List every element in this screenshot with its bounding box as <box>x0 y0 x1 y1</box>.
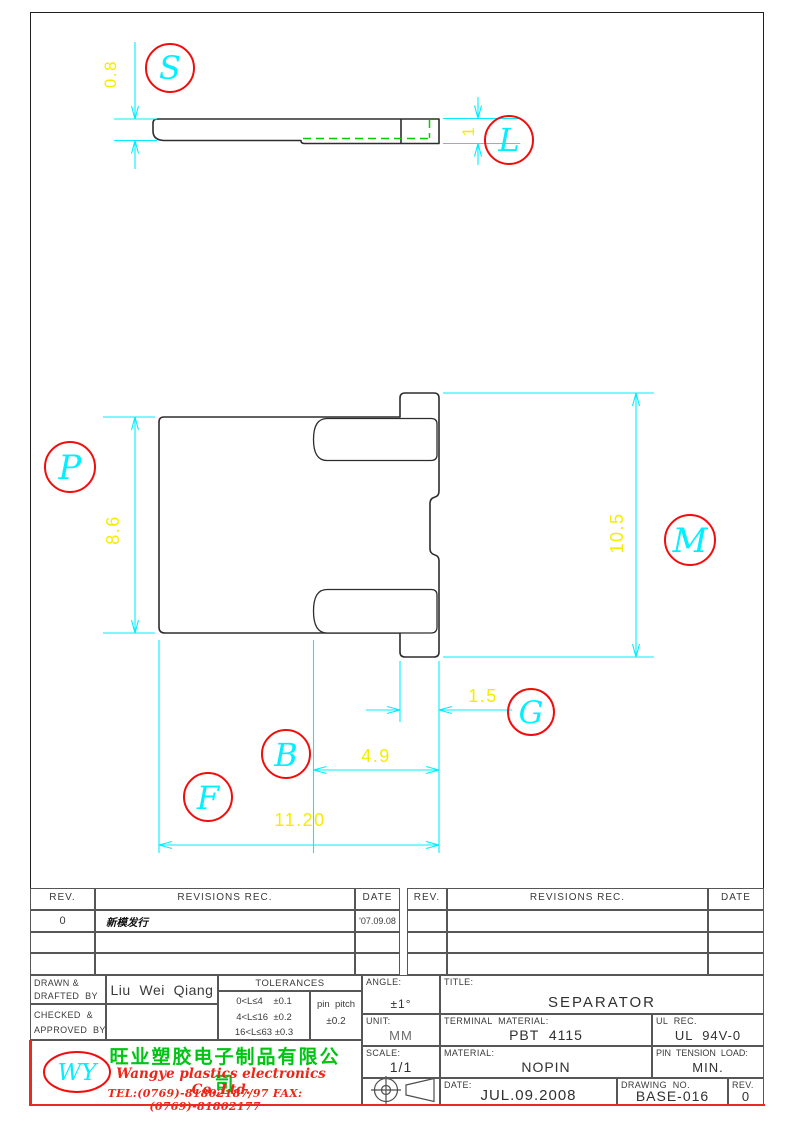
material-cell: MATERIAL: NOPIN <box>440 1046 652 1078</box>
rev-header-left: REV. <box>31 892 94 903</box>
rev-empty-cell <box>708 932 764 953</box>
ul-rec-value: UL 94V-0 <box>653 1028 763 1043</box>
rev-empty-cell <box>95 953 355 975</box>
rev-empty-cell <box>407 932 447 953</box>
rev-empty-cell <box>355 932 400 953</box>
drawing-sheet: 0.8 1 S L 8.6 <box>0 0 793 1122</box>
date-value: JUL.09.2008 <box>441 1087 616 1104</box>
rev-empty-cell <box>447 932 708 953</box>
pin-tension-cell: PIN TENSION LOAD: MIN. <box>652 1046 764 1078</box>
rev-entry-rev: 0 <box>31 915 94 927</box>
ul-rec-cell: UL REC. UL 94V-0 <box>652 1014 764 1046</box>
company-tel-fax: TEL:(0769)-81802187/97 FAX:(0769)-818021… <box>52 1087 358 1113</box>
balloon-m-letter: M <box>672 521 709 561</box>
balloon-b: B <box>262 730 310 778</box>
checked-by-label: CHECKED & APPROVED BY <box>34 1008 106 1038</box>
revisions-header-left: REVISIONS REC. <box>96 892 354 903</box>
revisions-header-cell-left: REVISIONS REC. <box>95 888 355 910</box>
date-header-right: DATE <box>709 892 763 903</box>
rev-entry-rev-cell: 0 <box>30 910 95 932</box>
dim-slot-depth: 4.9 <box>314 746 440 774</box>
lower-slot <box>314 590 438 634</box>
drawn-by-label: DRAWN & DRAFTED BY <box>34 977 98 1003</box>
drawn-by-value-cell: Liu Wei Qiang <box>106 975 218 1004</box>
rev-entry-desc-cell: 新模发行 <box>95 910 355 932</box>
balloon-g: G <box>508 689 554 735</box>
material-label: MATERIAL: <box>444 1048 494 1058</box>
title-value: SEPARATOR <box>441 994 763 1011</box>
balloon-f-letter: F <box>196 779 221 817</box>
material-value: NOPIN <box>441 1059 651 1075</box>
date-header-cell-right: DATE <box>708 888 764 910</box>
rev-empty-cell <box>30 932 95 953</box>
revisions-header-right: REVISIONS REC. <box>448 892 707 903</box>
drawing-no-cell: DRAWING NO. BASE-016 <box>617 1078 728 1106</box>
balloon-s: S <box>146 44 194 92</box>
rev-entry-description: 新模发行 <box>106 915 148 930</box>
dim-slot-depth-text: 4.9 <box>361 746 391 766</box>
rev-header-cell-left: REV. <box>30 888 95 910</box>
scale-label: SCALE: <box>366 1048 400 1058</box>
dim-body-height: 8.6 <box>103 417 155 633</box>
pin-pitch-value: ±0.2 <box>311 1016 361 1027</box>
checked-by-label-cell: CHECKED & APPROVED BY <box>30 1004 106 1040</box>
tolerances-rows: 0<L≤4 ±0.1 4<L≤16 ±0.2 16<L≤63 ±0.3 <box>219 994 309 1041</box>
upper-slot <box>314 419 438 461</box>
drawing-no-value: BASE-016 <box>618 1088 727 1104</box>
balloon-b-letter: B <box>273 736 298 774</box>
angle-cell: ANGLE: ±1° <box>362 975 440 1014</box>
terminal-material-value: PBT 4115 <box>441 1027 651 1043</box>
title-label: TITLE: <box>444 977 473 987</box>
pin-tension-label: PIN TENSION LOAD: <box>656 1048 748 1058</box>
balloon-m: M <box>665 515 715 565</box>
date-header-left: DATE <box>356 892 399 903</box>
balloon-p-letter: P <box>58 448 83 488</box>
rev-entry-date: '07.09.08 <box>356 916 399 926</box>
rev-empty-cell <box>95 932 355 953</box>
rev-empty-cell <box>30 953 95 975</box>
date-cell: DATE: JUL.09.2008 <box>440 1078 617 1106</box>
balloon-f: F <box>184 773 232 821</box>
rev-empty-cell <box>407 953 447 975</box>
unit-label: UNIT: <box>366 1016 391 1026</box>
top-view-outline <box>153 119 439 144</box>
balloon-s-letter: S <box>159 49 181 87</box>
rev-empty-cell <box>708 910 764 932</box>
balloon-l: L <box>485 116 533 164</box>
rev-empty-cell <box>447 953 708 975</box>
dim-thickness-text: 0.8 <box>101 60 120 88</box>
balloon-p: P <box>45 442 95 492</box>
front-view <box>159 393 439 657</box>
unit-cell: UNIT: MM <box>362 1014 440 1046</box>
scale-value: 1/1 <box>363 1059 439 1075</box>
top-view <box>153 119 439 144</box>
dim-end-thickness-text: 1 <box>459 126 478 137</box>
revisions-header-cell-right: REVISIONS REC. <box>447 888 708 910</box>
ul-rec-label: UL REC. <box>656 1016 697 1026</box>
pin-pitch-label: pin pitch <box>311 999 361 1010</box>
rev-empty-cell <box>708 953 764 975</box>
dim-overall-height: 10.5 <box>443 393 654 657</box>
rev-empty-cell <box>447 910 708 932</box>
rev-header-right: REV. <box>408 892 446 903</box>
terminal-material-label: TERMINAL MATERIAL: <box>444 1016 549 1026</box>
tolerances-rows-cell: 0<L≤4 ±0.1 4<L≤16 ±0.2 16<L≤63 ±0.3 <box>218 991 310 1040</box>
title-cell: TITLE: SEPARATOR <box>440 975 764 1014</box>
rev-empty-cell <box>355 953 400 975</box>
dim-ear-width-text: 1.5 <box>468 686 498 706</box>
scale-cell: SCALE: 1/1 <box>362 1046 440 1078</box>
rev-empty-cell <box>407 910 447 932</box>
tolerances-header-cell: TOLERANCES <box>218 975 362 991</box>
tolerances-header: TOLERANCES <box>219 978 361 989</box>
dim-body-height-text: 8.6 <box>103 515 123 545</box>
rev-entry-date-cell: '07.09.08 <box>355 910 400 932</box>
red-bottom-border <box>29 1104 765 1106</box>
rev-no-value: 0 <box>729 1089 763 1104</box>
pin-pitch-cell: pin pitch ±0.2 <box>310 991 362 1040</box>
angle-label: ANGLE: <box>366 977 401 987</box>
drawn-by-value: Liu Wei Qiang <box>107 982 217 998</box>
balloon-g-letter: G <box>519 695 544 731</box>
angle-value: ±1° <box>363 997 439 1011</box>
red-left-border <box>29 1040 31 1106</box>
unit-value: MM <box>363 1028 439 1043</box>
rev-header-cell-right: REV. <box>407 888 447 910</box>
terminal-material-cell: TERMINAL MATERIAL: PBT 4115 <box>440 1014 652 1046</box>
balloon-l-letter: L <box>497 121 519 159</box>
projection-symbol-cell <box>362 1078 440 1106</box>
dim-overall-width-text: 11.20 <box>274 810 325 830</box>
drawn-by-label-cell: DRAWN & DRAFTED BY <box>30 975 106 1004</box>
pin-tension-value: MIN. <box>653 1060 763 1075</box>
dim-thickness: 0.8 <box>101 42 157 169</box>
dim-overall-height-text: 10.5 <box>607 512 627 553</box>
date-header-cell-left: DATE <box>355 888 400 910</box>
rev-no-cell: REV. 0 <box>728 1078 764 1106</box>
checked-by-value-cell <box>106 1004 218 1040</box>
